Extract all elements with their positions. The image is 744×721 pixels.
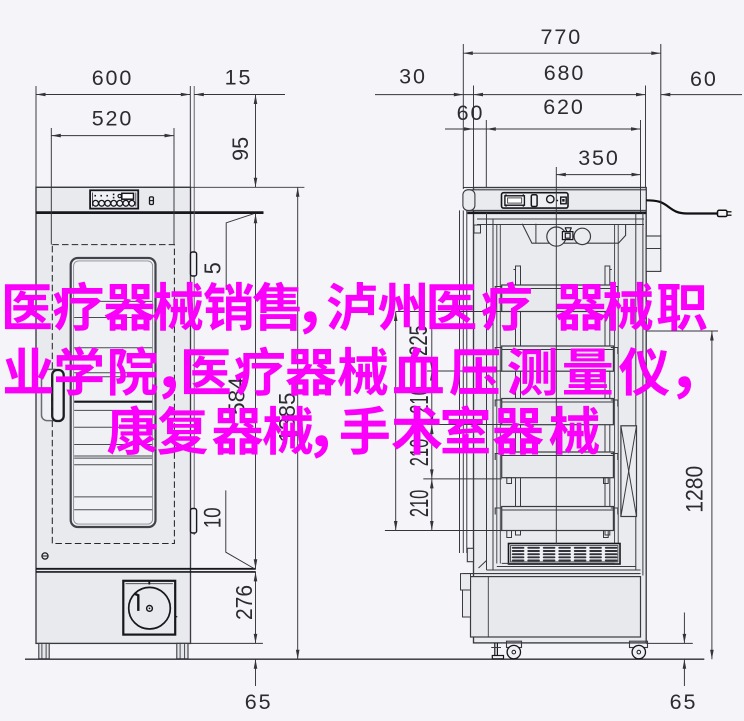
svg-text:65: 65 — [245, 690, 273, 714]
svg-text:1280: 1280 — [682, 466, 709, 513]
svg-text:770: 770 — [541, 25, 583, 49]
svg-text:210: 210 — [406, 490, 434, 518]
svg-text:350: 350 — [578, 146, 620, 170]
svg-text:15: 15 — [225, 66, 253, 90]
svg-text:30: 30 — [399, 65, 427, 89]
svg-text:620: 620 — [543, 95, 585, 119]
svg-text:95: 95 — [228, 137, 253, 161]
svg-text:600: 600 — [92, 66, 134, 90]
svg-text:5: 5 — [200, 262, 226, 274]
svg-text:60: 60 — [457, 101, 485, 125]
svg-text:520: 520 — [92, 107, 134, 131]
svg-text:276: 276 — [231, 585, 257, 620]
svg-text:65: 65 — [670, 690, 698, 714]
svg-text:680: 680 — [544, 61, 586, 85]
svg-text:60: 60 — [690, 67, 718, 91]
svg-text:10: 10 — [200, 507, 227, 528]
